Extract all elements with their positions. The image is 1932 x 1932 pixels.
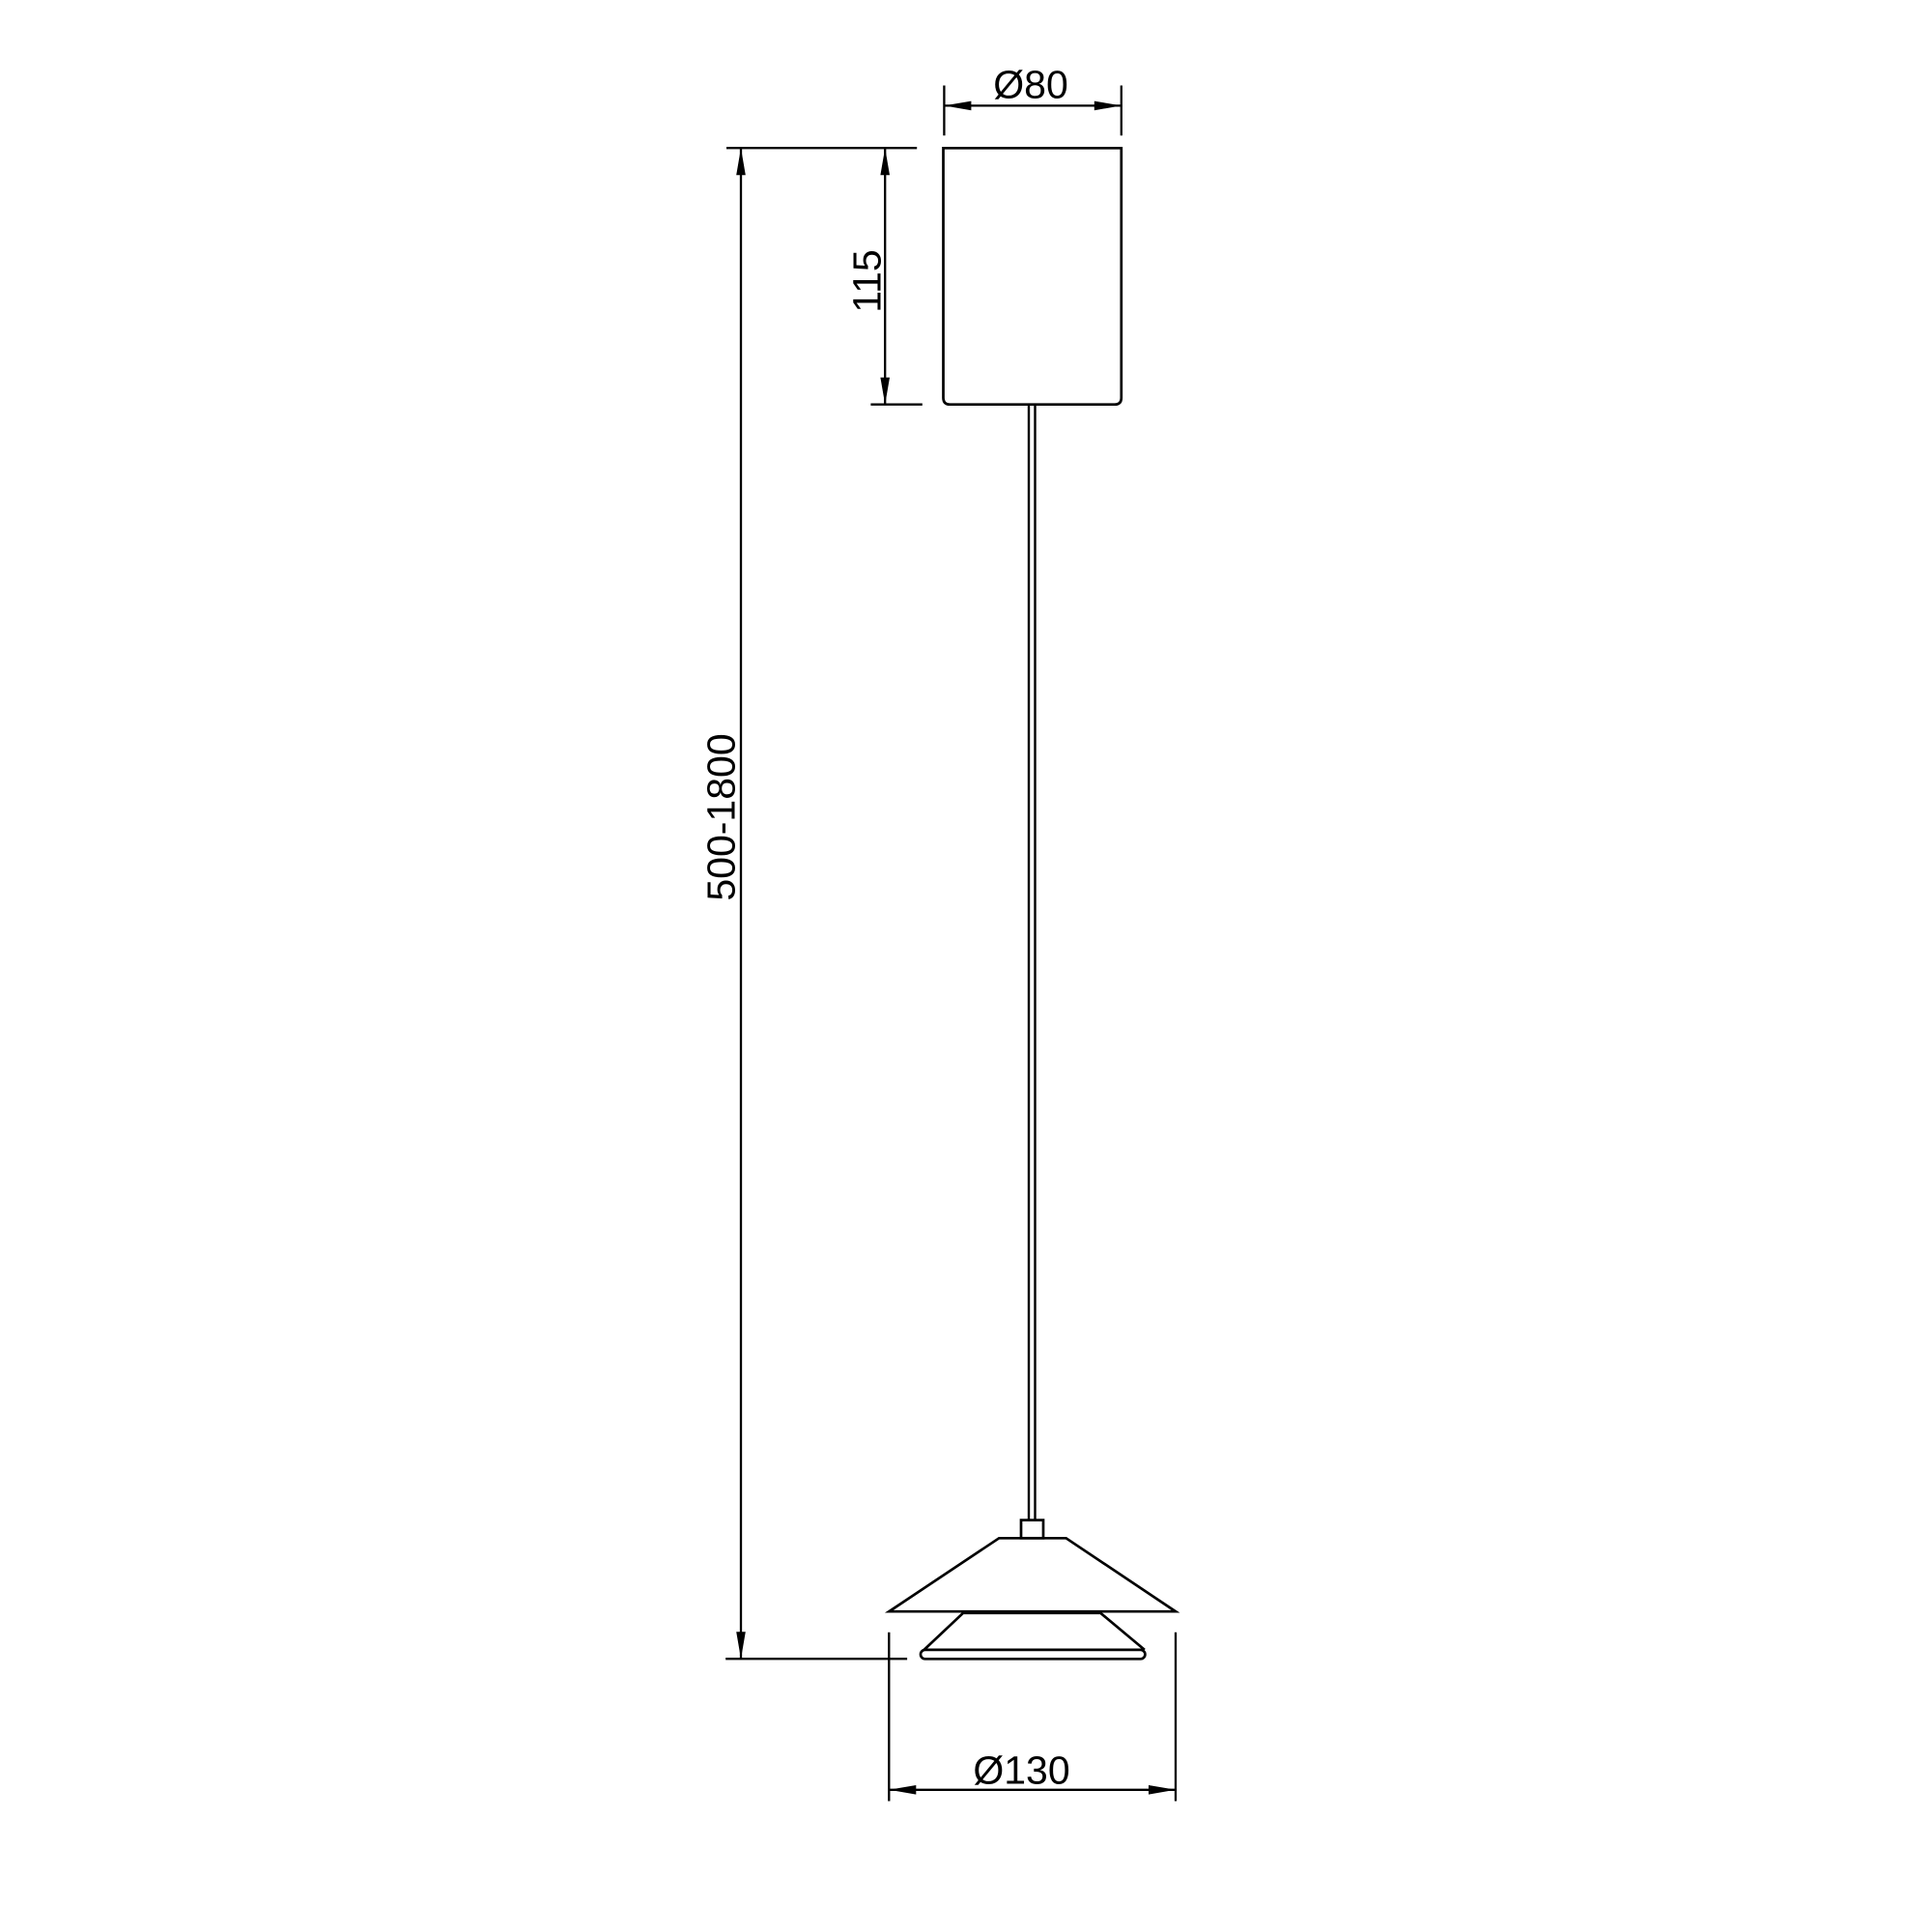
svg-text:115: 115 (845, 249, 890, 312)
svg-text:Ø80: Ø80 (993, 63, 1068, 107)
svg-text:Ø130: Ø130 (973, 1747, 1069, 1792)
svg-text:500-1800: 500-1800 (699, 733, 744, 900)
